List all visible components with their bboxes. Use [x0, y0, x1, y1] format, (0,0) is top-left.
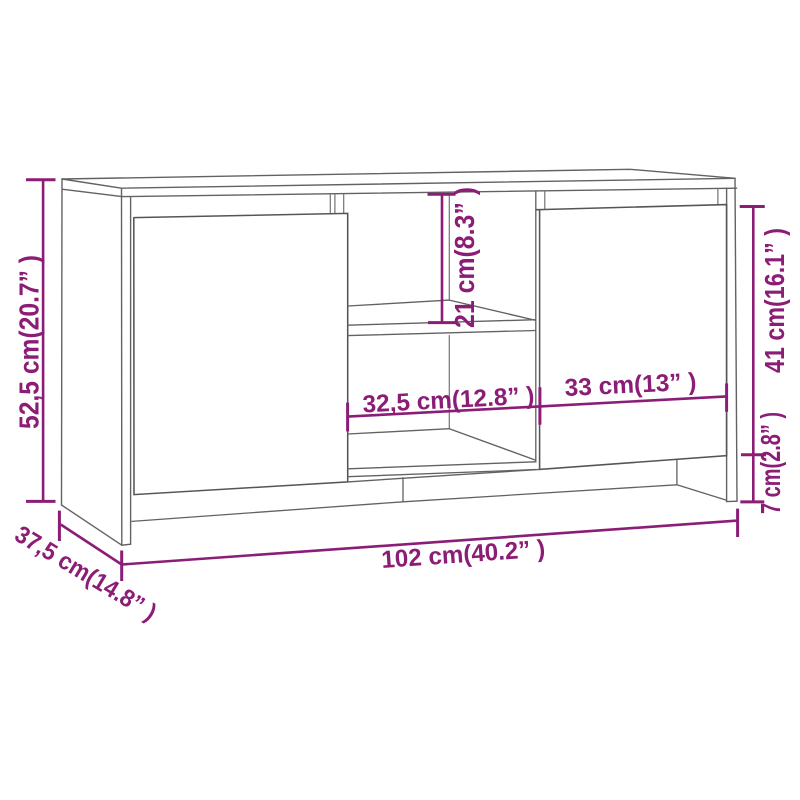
svg-text:21 cm(8.3” ): 21 cm(8.3” )	[449, 187, 480, 328]
svg-text:52,5 cm(20.7” ): 52,5 cm(20.7” )	[14, 255, 45, 429]
svg-text:41 cm(16.1” ): 41 cm(16.1” )	[759, 228, 790, 373]
svg-text:7 cm(2.8” ): 7 cm(2.8” )	[755, 412, 786, 514]
